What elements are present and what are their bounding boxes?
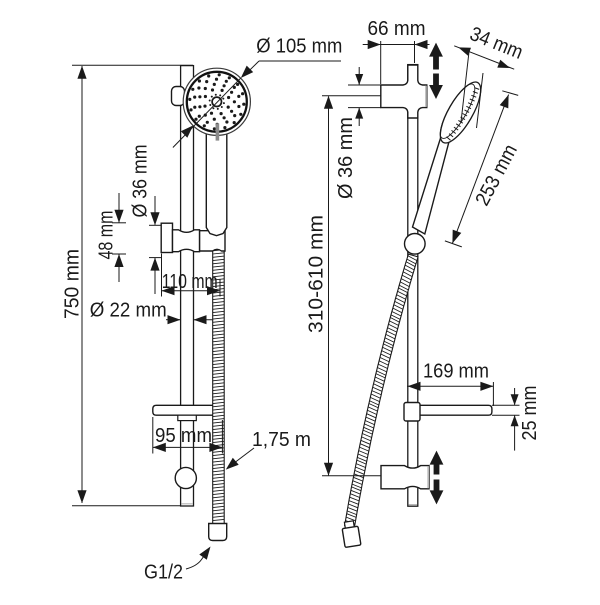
svg-text:Ø 36 mm: Ø 36 mm	[130, 145, 152, 218]
svg-text:310-610 mm: 310-610 mm	[306, 215, 328, 333]
svg-text:Ø 22 mm: Ø 22 mm	[90, 299, 167, 321]
svg-text:169 mm: 169 mm	[423, 361, 489, 383]
svg-text:Ø 36 mm: Ø 36 mm	[335, 117, 357, 199]
svg-text:66 mm: 66 mm	[368, 18, 426, 40]
svg-text:110 mm: 110 mm	[162, 271, 218, 293]
svg-text:25 mm: 25 mm	[519, 386, 541, 441]
svg-text:95 mm: 95 mm	[155, 425, 212, 447]
svg-text:48 mm: 48 mm	[96, 211, 118, 260]
svg-text:G1/2: G1/2	[144, 562, 183, 584]
svg-text:750 mm: 750 mm	[62, 249, 84, 319]
svg-text:Ø 105 mm: Ø 105 mm	[256, 35, 342, 57]
svg-text:1,75 m: 1,75 m	[252, 429, 311, 451]
